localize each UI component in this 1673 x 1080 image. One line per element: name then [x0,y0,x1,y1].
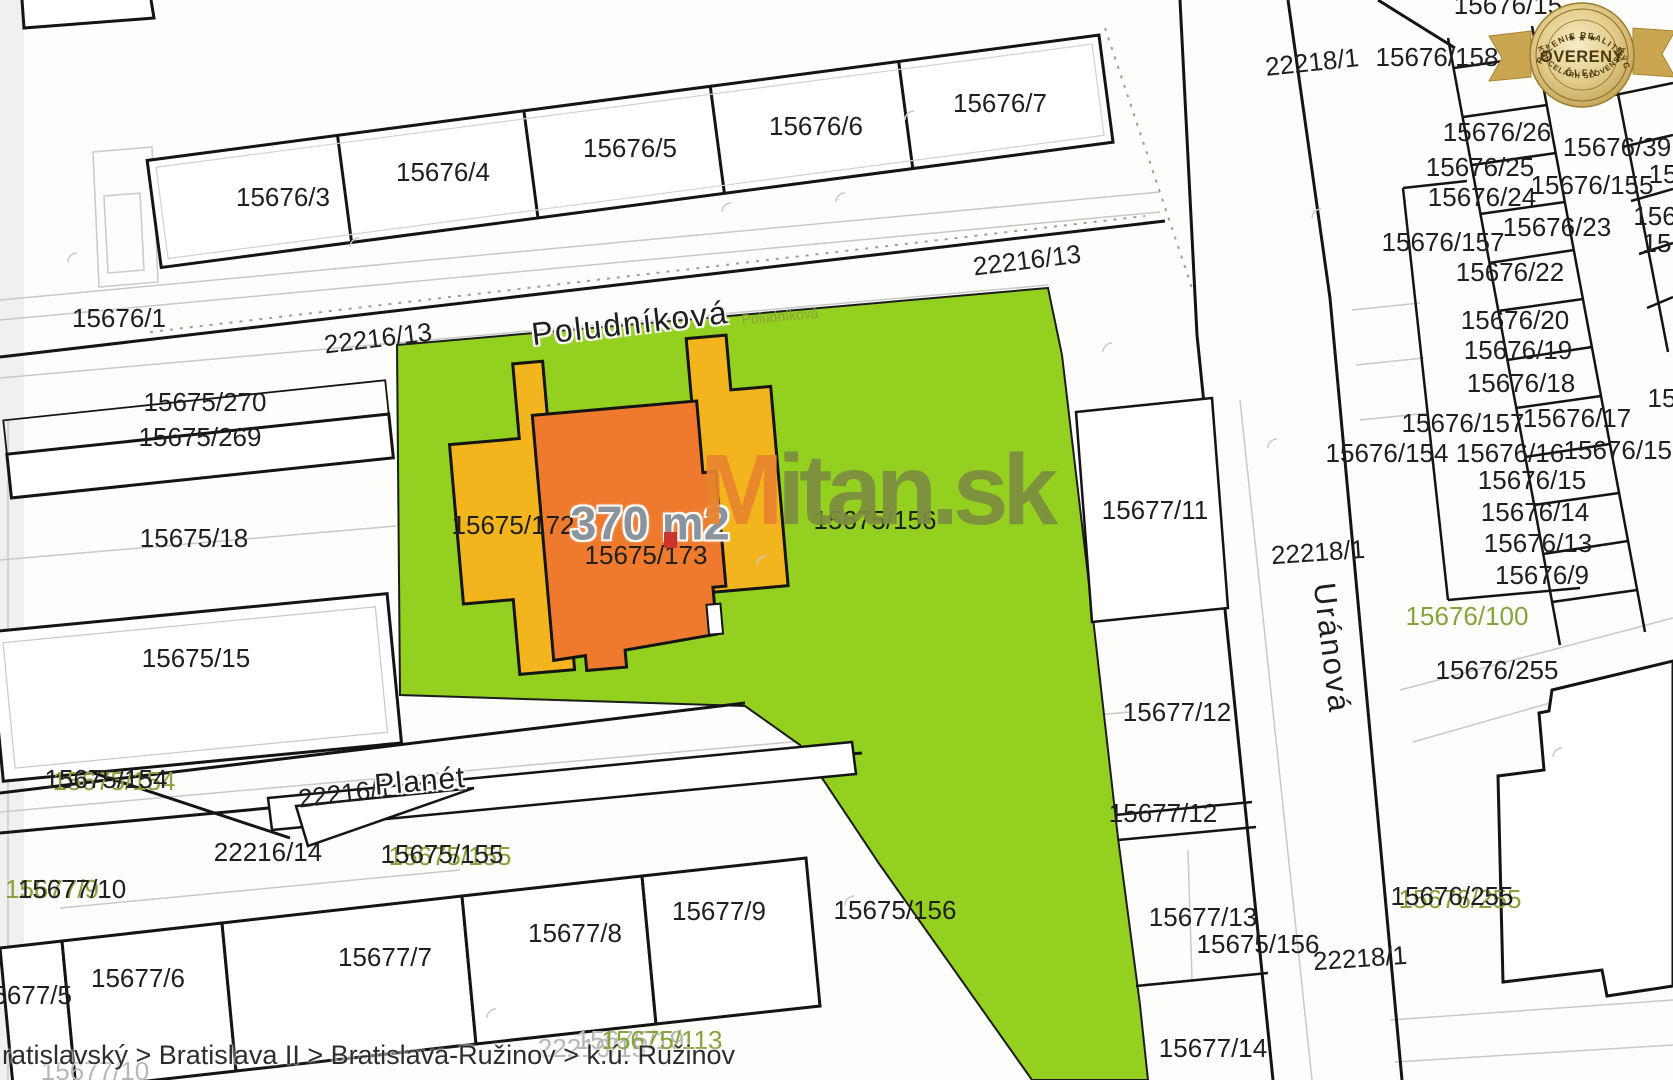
watermark-m: M [700,434,777,546]
certification-badge: ZDRUŽENIE REALITNÝCH KANCELÁRIÍ SLOVENSK… [1487,0,1673,120]
breadcrumb[interactable]: ratislavský > Bratislava II > Bratislava… [2,1040,735,1071]
edge-shading [0,0,24,1080]
watermark-logo: Mitan.sk [700,440,1052,540]
cadastral-map[interactable]: 15676/315676/415676/515676/615676/715676… [0,0,1673,1080]
watermark-rest: itan.sk [777,434,1052,546]
parcel-15677-11 [1076,398,1228,622]
watermark-accent [664,532,677,548]
badge-stars: ★ ★ ★ [1567,33,1596,43]
badge-main-text: OVERENÝ [1540,47,1624,66]
badge-ribbon-left [1489,31,1531,81]
badge-ribbon-right [1633,28,1673,77]
badge-sub-text: ČLEN [1566,67,1599,78]
